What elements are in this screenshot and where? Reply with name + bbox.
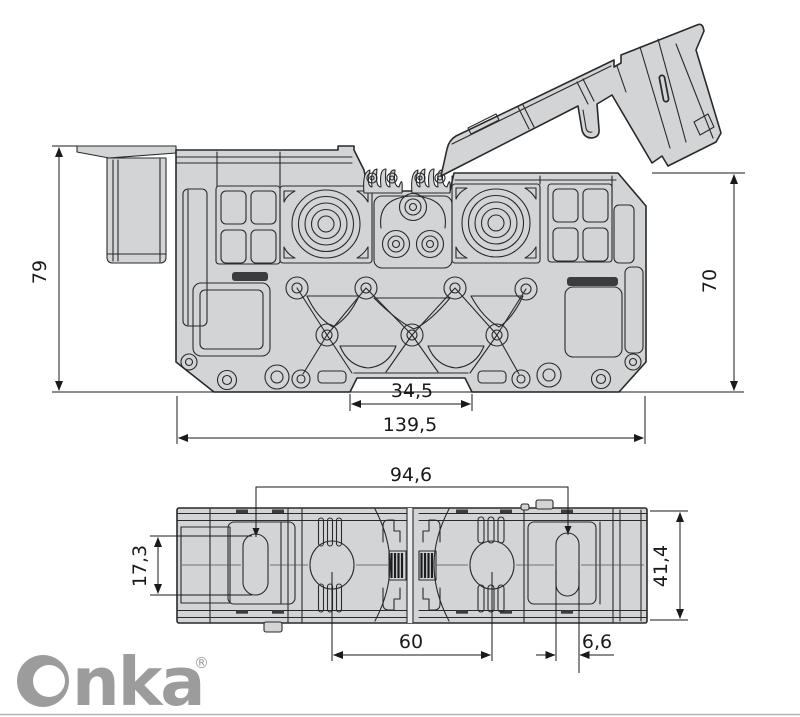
- brand-logo: nka ®: [17, 643, 209, 717]
- dim-overall-length: 139,5: [177, 396, 645, 444]
- dim-label-70: 70: [699, 269, 721, 293]
- hinge-knuckles: [364, 169, 451, 193]
- dim-label-60: 60: [399, 631, 423, 653]
- dim-height-right: 70: [652, 173, 745, 391]
- top-latch-tab: [536, 500, 553, 509]
- side-view: 79 70 34,5 139,5: [29, 24, 745, 444]
- dim-label-139-5: 139,5: [383, 414, 437, 436]
- drawing-canvas: 79 70 34,5 139,5: [0, 0, 800, 717]
- dim-label-34-5: 34,5: [391, 380, 433, 402]
- cover-outline: [441, 24, 721, 176]
- registered-mark: ®: [194, 654, 209, 672]
- cover-open: [441, 24, 721, 176]
- dim-label-94-6: 94,6: [390, 464, 432, 486]
- bottom-latch-tab: [264, 622, 282, 632]
- dim-overall-width: 41,4: [650, 511, 688, 620]
- dim-label-6-6: 6,6: [582, 631, 612, 653]
- technical-drawing: 79 70 34,5 139,5: [0, 0, 800, 717]
- dim-label-79: 79: [29, 260, 51, 284]
- dim-label-41-4: 41,4: [650, 545, 672, 587]
- top-view: 94,6 17,3 41,4 60: [129, 464, 688, 673]
- dim-notch-width: 34,5: [350, 380, 472, 411]
- side-body: [176, 146, 646, 392]
- side-flange: [77, 146, 176, 263]
- dim-height-left: 79: [29, 146, 77, 391]
- dim-label-17-3: 17,3: [129, 545, 151, 587]
- side-body-outline: [176, 146, 646, 392]
- logo-text: nka: [72, 643, 203, 717]
